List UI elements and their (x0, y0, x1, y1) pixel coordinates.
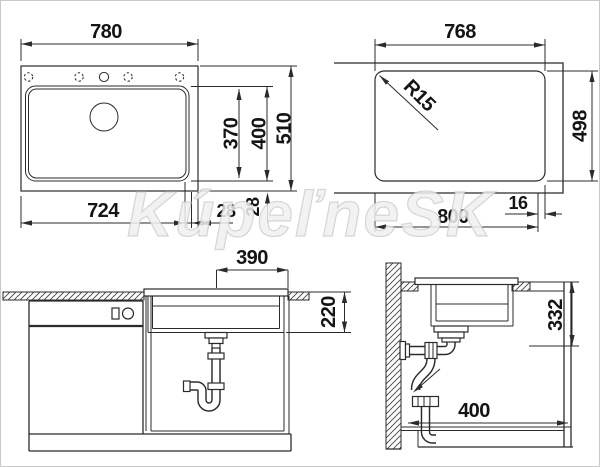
cutout-outline (375, 71, 545, 181)
pipe-nut (208, 353, 224, 359)
sink-rim (415, 278, 518, 285)
control-symbol-square (112, 308, 119, 319)
dim-depths: 370 400 510 (191, 66, 297, 191)
view-front-section: 390 220 (3, 247, 351, 451)
strainer-body (209, 338, 223, 344)
bowl-section (431, 284, 513, 326)
strainer-flange (205, 333, 227, 339)
dim-worktop-to-outlet: 332 (529, 282, 579, 346)
strainer-flange (434, 326, 468, 332)
control-symbol-circle (123, 308, 134, 319)
pipe-coupling (413, 397, 439, 407)
dim-label: 724 (87, 200, 120, 222)
dim-label: 400 (249, 117, 271, 149)
view-side-section: 332 400 (386, 263, 579, 449)
dim-label: 800 (437, 206, 469, 228)
dim-cutout-depth: 498 (547, 71, 598, 181)
dim-label: 390 (236, 247, 268, 269)
wall-section (386, 263, 401, 449)
bowl-section (148, 296, 284, 333)
dim-label: 510 (274, 112, 296, 144)
base-cabinets (29, 296, 291, 451)
dim-label: 498 (570, 110, 592, 142)
dim-label: 780 (90, 21, 122, 43)
dim-overall-width: 780 (21, 21, 198, 61)
worktop-section-left (3, 292, 144, 300)
sink-rim (144, 289, 288, 296)
dim-label: 400 (458, 400, 490, 422)
pipe-nut (208, 383, 224, 390)
strainer-outlet (442, 338, 460, 342)
dim-label: 28 (216, 201, 236, 221)
wall-flange (400, 342, 406, 360)
pipe-nut (425, 343, 437, 359)
dim-label: 332 (545, 299, 567, 331)
drain-trap (400, 326, 468, 439)
sink-outline (21, 66, 198, 191)
dim-drain-to-edge: 390 (217, 247, 289, 288)
wall-flange-inner (406, 344, 410, 357)
dim-label: 220 (318, 296, 340, 328)
dim-label: 370 (221, 117, 243, 149)
dim-cabinet-width: 800 16 (375, 185, 562, 232)
technical-drawing-page: 780 370 400 510 (0, 0, 600, 467)
drain-trap (184, 333, 228, 408)
view-cutout: R15 768 498 800 (334, 21, 598, 232)
drawing-canvas: 780 370 400 510 (1, 1, 600, 467)
worktop-section-right (288, 292, 309, 300)
worktop-front-edge (530, 282, 564, 291)
strainer-body (438, 332, 464, 338)
outlet-nut (184, 381, 191, 392)
dim-label: 28 (243, 197, 263, 217)
strainer-outlet (212, 344, 220, 349)
dim-label: 768 (444, 21, 476, 43)
view-sink-top: 780 370 400 510 (21, 21, 297, 228)
dim-label: 16 (508, 193, 528, 213)
